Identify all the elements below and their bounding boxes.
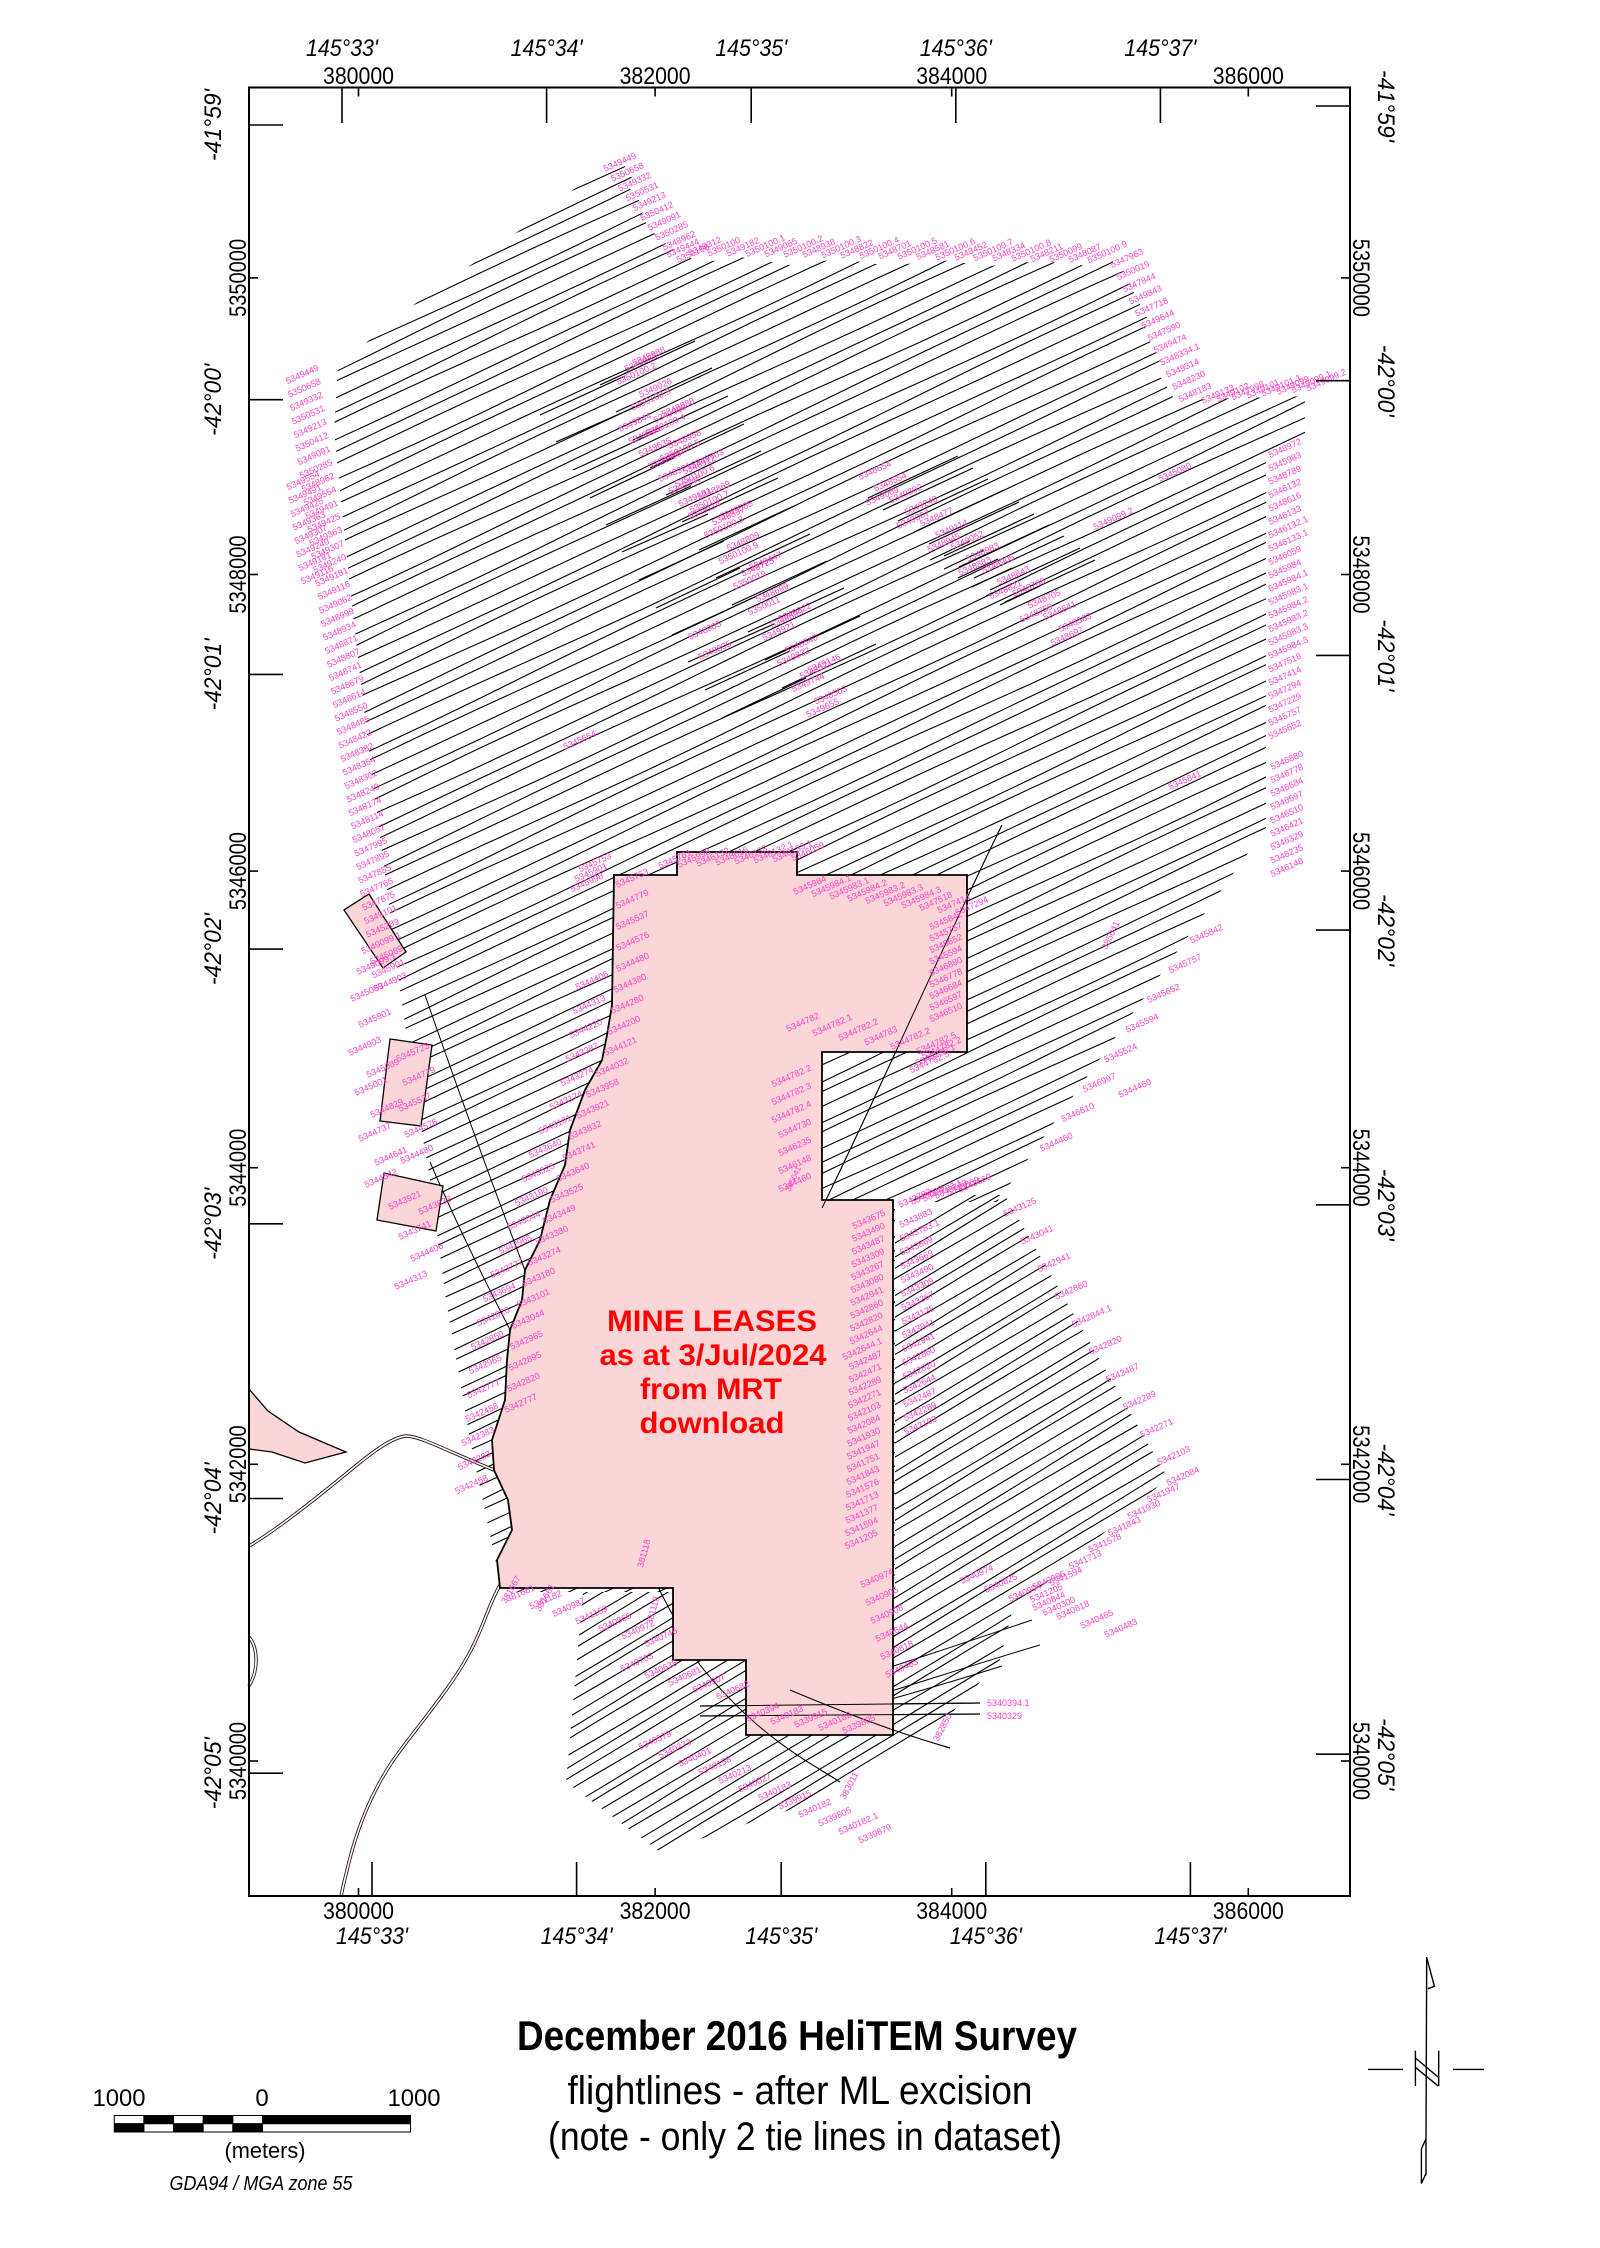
svg-text:MINE LEASES: MINE LEASES — [607, 1305, 817, 1338]
svg-text:1000: 1000 — [93, 2085, 146, 2112]
svg-text:382000: 382000 — [620, 1898, 691, 1925]
svg-text:5342000: 5342000 — [225, 1425, 252, 1503]
svg-text:download: download — [640, 1407, 785, 1440]
svg-text:380000: 380000 — [323, 63, 394, 90]
svg-text:145°37': 145°37' — [1124, 35, 1197, 62]
svg-text:384000: 384000 — [916, 63, 987, 90]
svg-text:GDA94 / MGA zone 55: GDA94 / MGA zone 55 — [170, 2173, 354, 2195]
svg-text:-42°00': -42°00' — [1372, 345, 1399, 418]
svg-text:145°34': 145°34' — [541, 1923, 614, 1950]
svg-text:0: 0 — [255, 2085, 268, 2112]
svg-text:145°33': 145°33' — [336, 1923, 409, 1950]
svg-text:1000: 1000 — [388, 2085, 441, 2112]
svg-text:5348000: 5348000 — [225, 536, 252, 614]
svg-text:5350000: 5350000 — [225, 239, 252, 317]
svg-text:145°36': 145°36' — [920, 35, 993, 62]
svg-text:5340000: 5340000 — [1347, 1722, 1374, 1800]
svg-text:5350000: 5350000 — [1347, 239, 1374, 317]
svg-text:5342000: 5342000 — [1347, 1425, 1374, 1503]
svg-text:5340394.1: 5340394.1 — [987, 1698, 1030, 1708]
svg-text:-41°59': -41°59' — [1372, 70, 1399, 143]
svg-text:-42°01': -42°01' — [1372, 619, 1399, 692]
svg-text:5344000: 5344000 — [225, 1129, 252, 1207]
svg-text:-42°00': -42°00' — [200, 362, 227, 435]
svg-text:145°35': 145°35' — [745, 1923, 818, 1950]
svg-text:386000: 386000 — [1213, 63, 1284, 90]
svg-text:5344000: 5344000 — [1347, 1129, 1374, 1207]
svg-text:-42°03': -42°03' — [1372, 1169, 1399, 1242]
svg-text:-42°02': -42°02' — [200, 912, 227, 985]
svg-text:5348000: 5348000 — [1347, 536, 1374, 614]
svg-text:145°34': 145°34' — [511, 35, 584, 62]
svg-text:-42°05': -42°05' — [1372, 1718, 1399, 1791]
svg-text:384000: 384000 — [916, 1898, 987, 1925]
svg-text:-42°05': -42°05' — [200, 1736, 227, 1809]
svg-text:-42°04': -42°04' — [1372, 1444, 1399, 1517]
svg-text:145°33': 145°33' — [306, 35, 379, 62]
svg-text:as at 3/Jul/2024: as at 3/Jul/2024 — [600, 1339, 827, 1372]
svg-text:382000: 382000 — [620, 63, 691, 90]
svg-text:-41°59': -41°59' — [200, 88, 227, 161]
svg-text:380000: 380000 — [323, 1898, 394, 1925]
svg-text:-42°03': -42°03' — [200, 1186, 227, 1259]
svg-text:from MRT: from MRT — [640, 1373, 782, 1406]
svg-text:-42°04': -42°04' — [200, 1461, 227, 1534]
svg-text:386000: 386000 — [1213, 1898, 1284, 1925]
svg-text:5346000: 5346000 — [225, 832, 252, 910]
svg-text:-42°02': -42°02' — [1372, 894, 1399, 967]
svg-text:flightlines - after ML excisio: flightlines - after ML excision — [568, 2069, 1033, 2113]
svg-text:-42°01': -42°01' — [200, 637, 227, 710]
svg-text:(note - only 2 tie lines in da: (note - only 2 tie lines in dataset) — [548, 2115, 1062, 2159]
svg-text:5340329: 5340329 — [987, 1711, 1022, 1721]
svg-text:(meters): (meters) — [225, 2138, 306, 2163]
svg-text:December 2016 HeliTEM Survey: December 2016 HeliTEM Survey — [517, 2012, 1078, 2059]
svg-text:145°36': 145°36' — [950, 1923, 1023, 1950]
svg-text:145°37': 145°37' — [1154, 1923, 1227, 1950]
svg-text:5346000: 5346000 — [1347, 832, 1374, 910]
svg-text:145°35': 145°35' — [715, 35, 788, 62]
svg-text:5340000: 5340000 — [225, 1722, 252, 1800]
